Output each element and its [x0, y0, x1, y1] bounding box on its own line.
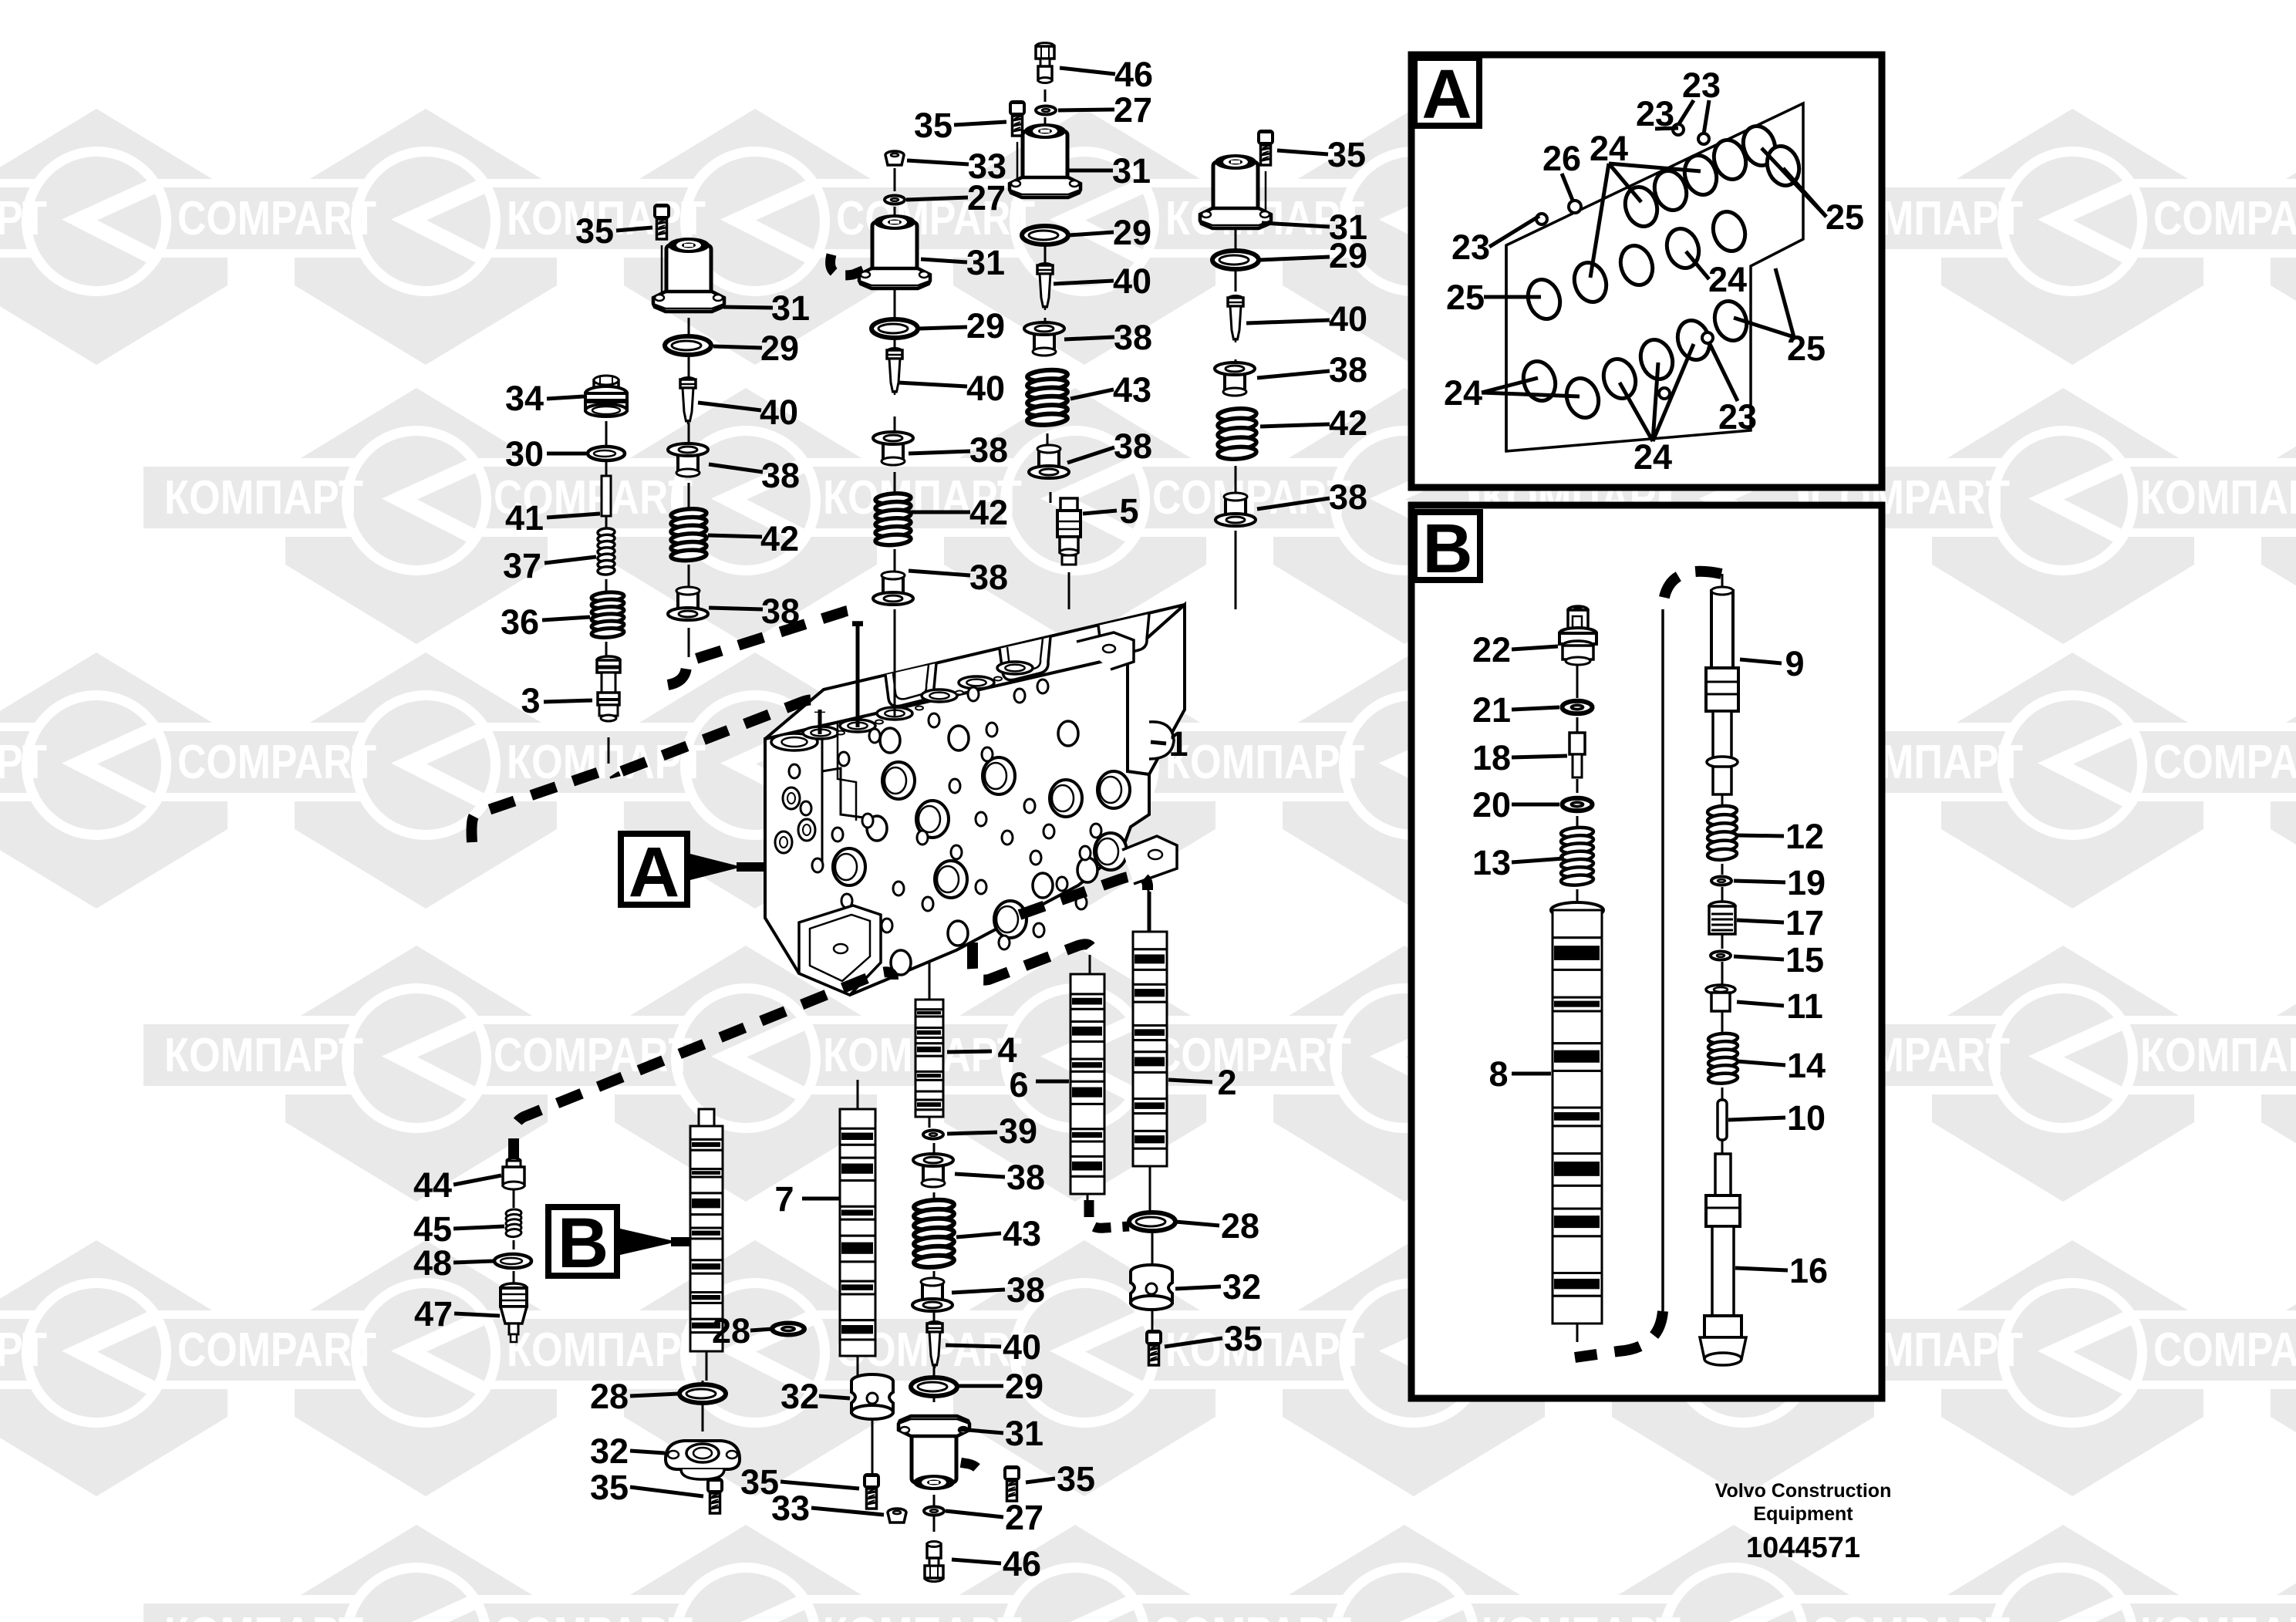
svg-text:7: 7 [774, 1179, 794, 1219]
svg-text:35: 35 [914, 106, 952, 145]
svg-text:46: 46 [1114, 55, 1153, 94]
svg-text:26: 26 [1542, 139, 1581, 178]
svg-text:COMPART: COMPART [177, 192, 376, 245]
svg-text:23: 23 [1718, 397, 1757, 437]
svg-text:A: A [1422, 56, 1472, 133]
svg-text:43: 43 [1113, 370, 1151, 410]
svg-text:32: 32 [1222, 1267, 1261, 1307]
svg-text:40: 40 [1329, 299, 1367, 339]
svg-text:КОМПАРТ: КОМПАРТ [1482, 1608, 1681, 1622]
svg-text:КОМПАРТ: КОМПАРТ [507, 736, 706, 789]
svg-text:38: 38 [761, 456, 800, 495]
svg-text:29: 29 [1113, 213, 1151, 252]
svg-text:B: B [558, 1204, 609, 1283]
svg-text:2: 2 [1217, 1063, 1236, 1102]
svg-text:1044571: 1044571 [1746, 1532, 1860, 1564]
svg-text:32: 32 [590, 1431, 629, 1471]
svg-text:6: 6 [1009, 1065, 1028, 1104]
svg-text:38: 38 [969, 558, 1008, 597]
svg-text:33: 33 [771, 1489, 810, 1528]
svg-text:23: 23 [1682, 66, 1721, 105]
svg-text:24: 24 [1444, 373, 1482, 413]
svg-text:35: 35 [1224, 1319, 1263, 1358]
svg-text:40: 40 [966, 369, 1005, 408]
svg-text:КОМПАРТ: КОМПАРТ [2140, 471, 2296, 524]
svg-text:COMPART: COMPART [2153, 1324, 2296, 1377]
svg-text:38: 38 [761, 592, 800, 631]
svg-text:35: 35 [575, 211, 614, 251]
svg-text:COMPART: COMPART [1152, 1608, 1351, 1622]
svg-text:COMPART: COMPART [494, 1608, 693, 1622]
svg-text:27: 27 [1005, 1498, 1043, 1537]
svg-text:COMPART: COMPART [2153, 192, 2296, 245]
svg-text:47: 47 [414, 1294, 453, 1334]
svg-text:38: 38 [1329, 477, 1367, 517]
svg-text:14: 14 [1787, 1046, 1826, 1085]
svg-text:29: 29 [760, 329, 799, 368]
svg-text:35: 35 [1057, 1459, 1095, 1499]
svg-text:36: 36 [501, 602, 539, 642]
svg-text:41: 41 [505, 498, 544, 538]
svg-text:40: 40 [760, 393, 798, 432]
svg-text:37: 37 [503, 546, 541, 585]
svg-text:КОМПАРТ: КОМПАРТ [1165, 1324, 1364, 1377]
svg-text:КОМПАРТ: КОМПАРТ [164, 1608, 363, 1622]
svg-text:13: 13 [1472, 843, 1511, 882]
svg-text:25: 25 [1826, 197, 1864, 237]
svg-text:15: 15 [1785, 940, 1824, 980]
svg-text:КОМПАРТ: КОМПАРТ [2140, 1029, 2296, 1082]
svg-text:COMPART: COMPART [494, 1029, 693, 1082]
svg-text:38: 38 [1006, 1158, 1045, 1197]
svg-text:27: 27 [967, 178, 1006, 218]
svg-text:24: 24 [1633, 437, 1672, 477]
svg-text:22: 22 [1472, 630, 1511, 669]
svg-text:11: 11 [1786, 986, 1823, 1026]
svg-text:5: 5 [1119, 491, 1138, 531]
svg-text:42: 42 [969, 493, 1008, 532]
svg-text:1: 1 [1168, 724, 1188, 764]
svg-text:24: 24 [1590, 129, 1628, 168]
svg-text:19: 19 [1787, 863, 1826, 902]
svg-text:28: 28 [590, 1377, 629, 1416]
svg-text:9: 9 [1785, 644, 1804, 683]
svg-text:29: 29 [966, 306, 1005, 346]
svg-text:38: 38 [1329, 350, 1367, 389]
svg-text:COMPART: COMPART [177, 1324, 376, 1377]
svg-text:28: 28 [712, 1311, 750, 1351]
svg-text:40: 40 [1003, 1327, 1041, 1367]
svg-text:42: 42 [1329, 403, 1367, 443]
svg-text:38: 38 [1114, 318, 1152, 357]
svg-text:29: 29 [1329, 236, 1367, 275]
svg-text:27: 27 [1114, 90, 1152, 130]
svg-text:31: 31 [1005, 1414, 1043, 1453]
svg-text:29: 29 [1005, 1367, 1043, 1406]
svg-text:4: 4 [997, 1030, 1017, 1070]
svg-text:B: B [1423, 511, 1473, 588]
svg-text:КОМПАРТ: КОМПАРТ [164, 471, 363, 524]
svg-text:43: 43 [1003, 1214, 1041, 1253]
svg-text:32: 32 [781, 1377, 819, 1416]
svg-text:35: 35 [1327, 135, 1366, 174]
svg-text:3: 3 [521, 681, 540, 720]
svg-text:8: 8 [1489, 1054, 1508, 1094]
svg-text:КОМПАРТ: КОМПАРТ [0, 192, 47, 245]
svg-text:31: 31 [1112, 151, 1151, 191]
svg-text:46: 46 [1003, 1544, 1041, 1583]
svg-text:40: 40 [1113, 261, 1151, 301]
svg-text:38: 38 [969, 430, 1008, 470]
svg-text:24: 24 [1708, 260, 1747, 299]
svg-text:31: 31 [966, 243, 1005, 282]
svg-text:COMPART: COMPART [2153, 736, 2296, 789]
svg-text:20: 20 [1472, 785, 1511, 824]
svg-text:28: 28 [1221, 1206, 1259, 1246]
svg-text:COMPART: COMPART [177, 736, 376, 789]
svg-text:44: 44 [413, 1165, 452, 1205]
svg-text:39: 39 [999, 1111, 1037, 1151]
svg-text:18: 18 [1472, 738, 1511, 777]
svg-text:КОМПАРТ: КОМПАРТ [0, 1324, 47, 1377]
svg-text:КОМПАРТ: КОМПАРТ [2140, 1608, 2296, 1622]
svg-text:12: 12 [1785, 817, 1824, 856]
svg-text:A: A [629, 833, 679, 912]
svg-text:Equipment: Equipment [1753, 1503, 1853, 1525]
svg-text:34: 34 [505, 379, 544, 418]
svg-text:КОМПАРТ: КОМПАРТ [823, 1608, 1022, 1622]
svg-text:КОМПАРТ: КОМПАРТ [164, 1029, 363, 1082]
svg-text:25: 25 [1446, 278, 1485, 317]
svg-text:КОМПАРТ: КОМПАРТ [0, 736, 47, 789]
svg-text:КОМПАРТ: КОМПАРТ [1165, 736, 1364, 789]
svg-text:17: 17 [1785, 903, 1824, 943]
svg-text:38: 38 [1006, 1270, 1045, 1310]
svg-text:Volvo Construction: Volvo Construction [1715, 1480, 1892, 1502]
svg-text:21: 21 [1472, 690, 1511, 730]
svg-text:16: 16 [1789, 1251, 1828, 1290]
svg-text:COMPART: COMPART [1152, 1029, 1351, 1082]
svg-text:10: 10 [1787, 1098, 1826, 1138]
svg-text:38: 38 [1114, 427, 1152, 466]
svg-text:КОМПАРТ: КОМПАРТ [507, 1324, 706, 1377]
svg-text:48: 48 [413, 1243, 452, 1283]
svg-text:COMPART: COMPART [1811, 1608, 2010, 1622]
svg-text:35: 35 [590, 1468, 629, 1507]
svg-text:30: 30 [505, 434, 544, 474]
svg-text:31: 31 [771, 288, 810, 328]
svg-text:42: 42 [760, 519, 799, 558]
svg-text:23: 23 [1451, 228, 1490, 267]
